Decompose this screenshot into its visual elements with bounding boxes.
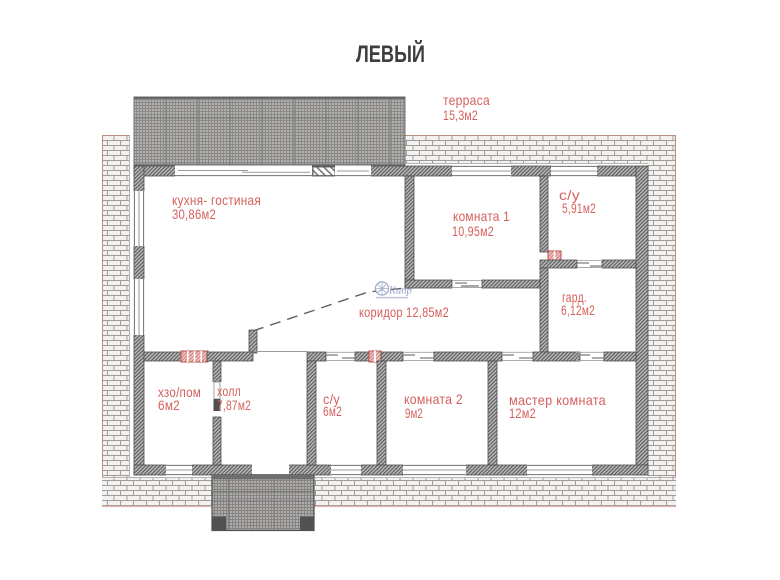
svg-text:10,95м2: 10,95м2 xyxy=(452,223,494,239)
svg-text:9м2: 9м2 xyxy=(405,405,423,421)
svg-text:ЛЕВЫЙ: ЛЕВЫЙ xyxy=(356,40,425,68)
svg-text:Кипр: Кипр xyxy=(388,286,412,297)
svg-text:7,87м2: 7,87м2 xyxy=(217,397,251,413)
svg-text:30,86м2: 30,86м2 xyxy=(172,206,216,222)
svg-text:6м2: 6м2 xyxy=(158,397,180,413)
svg-text:12м2: 12м2 xyxy=(509,405,536,421)
svg-text:терраса: терраса xyxy=(443,92,490,108)
svg-text:комната 1: комната 1 xyxy=(453,208,510,224)
svg-text:6,12м2: 6,12м2 xyxy=(561,302,595,318)
svg-text:6м2: 6м2 xyxy=(323,403,342,419)
svg-text:коридор 12,85м2: коридор 12,85м2 xyxy=(359,304,449,320)
svg-text:15,3м2: 15,3м2 xyxy=(443,107,478,123)
svg-text:5,91м2: 5,91м2 xyxy=(562,200,596,216)
